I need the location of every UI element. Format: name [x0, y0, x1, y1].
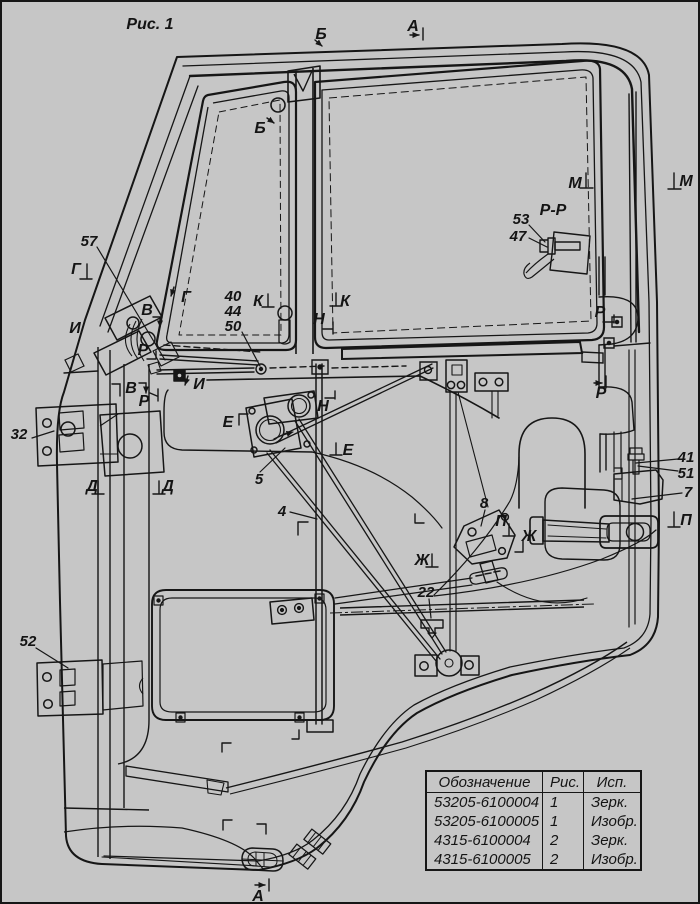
view-label-zh-right: Ж — [521, 528, 538, 545]
view-label-r-hinge-lower: Р — [139, 393, 150, 410]
view-label-d-left: Д — [84, 478, 98, 495]
col-header-figure: Рис. — [543, 771, 584, 793]
view-label-g-mid: Г — [181, 289, 192, 306]
callout-7: 7 — [684, 484, 693, 501]
section-title-pp: Р-Р — [540, 202, 567, 219]
col-header-designation: Обозначение — [426, 771, 543, 793]
table-row: 4315-6100005 2 Изобр. — [426, 850, 641, 870]
view-label-d-right: Д — [160, 478, 174, 495]
callout-32: 32 — [11, 426, 28, 443]
view-label-r-rear-lower: Р — [596, 385, 607, 402]
view-label-b-top: Б — [315, 26, 326, 43]
usage-value: Изобр. — [584, 850, 642, 870]
door-outline — [57, 43, 659, 870]
callout-8: 8 — [480, 495, 489, 512]
part-number: 4315-6100004 — [426, 831, 543, 850]
view-label-e-right: Е — [343, 442, 355, 459]
usage-value: Зерк. — [584, 831, 642, 850]
view-label-b-vent: Б — [254, 120, 265, 137]
view-label-a-bottom: А — [251, 888, 264, 904]
section-marks — [80, 28, 681, 891]
view-label-e-left: Е — [223, 414, 235, 431]
figure-number: 1 — [543, 812, 584, 831]
part-number: 53205-6100005 — [426, 812, 543, 831]
usage-value: Изобр. — [584, 812, 642, 831]
callout-57: 57 — [81, 233, 98, 250]
figure-canvas: Рис. 1 А Б Б М М Р-Р Г Г В И К К Н Р Р Р… — [0, 0, 700, 904]
callout-52: 52 — [20, 633, 37, 650]
table-row: 53205-6100005 1 Изобр. — [426, 812, 641, 831]
callout-41: 41 — [677, 449, 695, 466]
view-label-m-right: М — [679, 173, 693, 190]
callout-53: 53 — [513, 211, 530, 228]
figure-number: 2 — [543, 850, 584, 870]
part-number: 53205-6100004 — [426, 793, 543, 813]
view-label-n-upper: Н — [313, 311, 325, 328]
view-label-p-mid: П — [495, 513, 507, 530]
view-label-v-upper: В — [141, 302, 153, 319]
figure-number: 2 — [543, 831, 584, 850]
door-assembly-drawing: Рис. 1 А Б Б М М Р-Р Г Г В И К К Н Р Р Р… — [2, 2, 700, 904]
mirror-bracket-detail — [524, 232, 590, 278]
usage-table: Обозначение Рис. Исп. 53205-6100004 1 Зе… — [425, 770, 642, 871]
view-label-v-lower: В — [125, 380, 137, 397]
rear-pillar — [599, 92, 638, 627]
callout-47: 47 — [509, 228, 527, 245]
view-label-k-right: К — [340, 293, 351, 310]
view-label-zh-left: Ж — [414, 552, 431, 569]
callout-4: 4 — [277, 503, 287, 520]
view-label-g-pillar: Г — [71, 261, 82, 278]
table-row: 53205-6100004 1 Зерк. — [426, 793, 641, 813]
table-row: 4315-6100004 2 Зерк. — [426, 831, 641, 850]
view-label-m-left: М — [568, 175, 582, 192]
callout-50: 50 — [225, 318, 242, 335]
view-label-i-lower: И — [193, 376, 205, 393]
view-label-k-left: К — [253, 293, 264, 310]
figure-number: 1 — [543, 793, 584, 813]
view-label-p-right: П — [680, 512, 692, 529]
view-label-n-lower: Н — [317, 398, 329, 415]
callout-22: 22 — [417, 584, 435, 601]
callout-51: 51 — [678, 465, 695, 482]
part-number: 4315-6100005 — [426, 850, 543, 870]
figure-caption: Рис. 1 — [126, 16, 173, 33]
callout-5: 5 — [255, 471, 264, 488]
view-label-i-upper: И — [69, 320, 81, 337]
usage-value: Зерк. — [584, 793, 642, 813]
col-header-usage: Исп. — [584, 771, 642, 793]
view-label-r-hinge-upper: Р — [138, 342, 149, 359]
view-label-r-rear-upper: Р — [595, 304, 606, 321]
view-label-a-top: А — [406, 18, 419, 35]
usage-table-header-row: Обозначение Рис. Исп. — [426, 771, 641, 793]
